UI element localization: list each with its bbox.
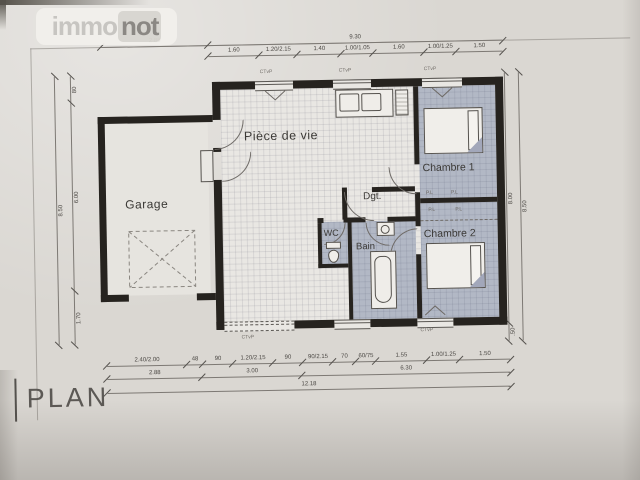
dim-seg: 1.50 (456, 40, 502, 53)
house-wall-left-upper (212, 82, 221, 120)
dim-seg: 60/75 (356, 350, 376, 362)
wc-label: WC (324, 228, 339, 238)
window-chevron-3 (424, 305, 446, 316)
garage-label: Garage (125, 197, 168, 212)
window-tag: CTvP (242, 334, 255, 340)
bay-door-bottom (224, 321, 294, 332)
window-tag: CTvP (339, 67, 352, 73)
bain-label: Bain (356, 241, 375, 252)
floorplan-photo: 2.88 9.30 1.60 1.20/2.15 1.40 1.00/1.05 … (0, 0, 640, 480)
dim-seg: 1.40 (297, 43, 341, 56)
dim-seg: 90/2.15 (303, 351, 333, 364)
dim-seg: 8.50 (54, 77, 71, 345)
bed-chambre1-symbol (423, 107, 483, 154)
window-chevron-2 (431, 87, 453, 98)
wc-wall-bottom (318, 264, 348, 269)
sink-basin-right (361, 93, 381, 111)
window-tag: CTvP (420, 327, 433, 333)
dgt-label: Dgt. (363, 191, 382, 202)
page-title: PLAN (26, 382, 109, 415)
title-margin-line (14, 379, 17, 422)
dim-seg: 1.60 (208, 44, 259, 57)
chambre1-label: Chambre 1 (422, 161, 474, 174)
dim-col-right-total: 8.50 (518, 72, 535, 340)
sheet-frame-left (30, 48, 38, 420)
dim-seg: 1.70 (74, 291, 87, 344)
toilet-tank-symbol (326, 242, 341, 249)
dim-seg: 1.55 (376, 349, 427, 362)
dim-seg: 1.00/1.05 (341, 42, 373, 55)
plan-sheet: 2.88 9.30 1.60 1.20/2.15 1.40 1.00/1.05 … (0, 0, 640, 480)
sink-basin-left (339, 93, 359, 111)
dim-col-left-segments: 80 6.00 1.70 (70, 76, 87, 344)
dim-seg: 1.00/1.25 (424, 41, 456, 54)
dim-seg: 2.40/2.00 (107, 354, 187, 367)
bathtub-inner (374, 256, 392, 303)
dim-seg: 8.50 (518, 72, 535, 340)
bed-chambre2-symbol (426, 242, 486, 289)
dim-seg: 1.20/2.15 (259, 43, 297, 56)
dim-seg: 6.30 (302, 361, 510, 377)
dim-seg: 6.00 (70, 103, 85, 291)
dim-seg: 90 (203, 353, 233, 366)
dim-seg: 1.50 (460, 348, 510, 361)
blanket-fold (469, 272, 484, 287)
wc-wall-left (318, 223, 323, 268)
dim-seg: 1.60 (373, 41, 424, 54)
dim-col-left-total: 8.50 (54, 77, 71, 345)
kitchen-hob-symbol (395, 89, 408, 115)
dim-seg: 80 (70, 76, 82, 103)
piece-de-vie-label: Pièce de vie (244, 128, 318, 143)
garage-wall-bottom-right (197, 293, 216, 300)
window-tag: CTvP (260, 69, 273, 75)
garage-wall-bottom-left (101, 295, 129, 303)
dim-seg: 2.88 (107, 366, 202, 380)
closet-tag: P.L (451, 190, 458, 196)
blanket-fold (467, 137, 482, 152)
window-bain (334, 319, 370, 330)
dim-seg: 3.00 (202, 364, 302, 378)
window-tag: CTvP (424, 66, 437, 72)
dim-seg: 1.20/2.15 (233, 352, 273, 365)
chambre2-label: Chambre 2 (424, 227, 476, 240)
dim-seg: 70 (333, 350, 356, 362)
garage-door-symbol (127, 228, 198, 289)
closet-tag: P.L (455, 206, 462, 212)
immonot-logo: immonot (36, 8, 177, 45)
logo-text-not: not (118, 11, 161, 42)
dim-seg: 1.00/1.25 (427, 349, 460, 362)
closet-tag: P.L (426, 190, 433, 196)
dim-seg: 90 (273, 351, 303, 364)
logo-text-immo: immo (52, 11, 117, 42)
entry-step (200, 150, 214, 182)
window-chevron-1 (264, 90, 286, 101)
closet-tag: P.L (428, 207, 435, 213)
